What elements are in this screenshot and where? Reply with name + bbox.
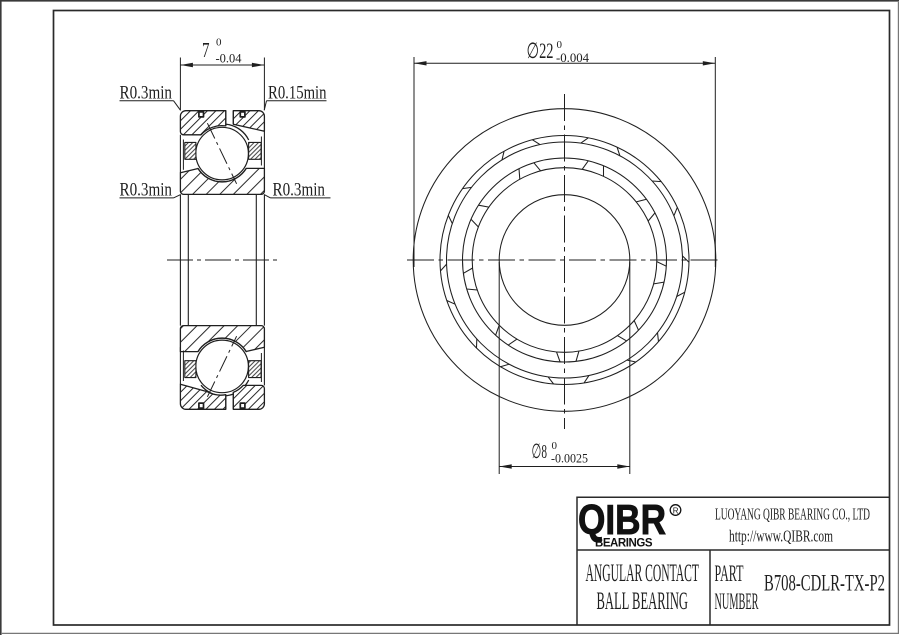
svg-text:0: 0 — [216, 37, 222, 49]
svg-text:ANGULAR CONTACT: ANGULAR CONTACT — [586, 560, 700, 587]
svg-text:0: 0 — [552, 440, 558, 452]
svg-text:∅8: ∅8 — [532, 441, 548, 463]
svg-text:http://www.QIBR.com: http://www.QIBR.com — [729, 527, 833, 546]
svg-text:-0.0025: -0.0025 — [551, 452, 588, 466]
svg-text:BEARINGS: BEARINGS — [595, 538, 653, 550]
svg-text:∅22: ∅22 — [527, 38, 554, 63]
svg-text:PART: PART — [715, 561, 744, 586]
svg-text:R: R — [673, 507, 679, 516]
svg-text:QIBR: QIBR — [578, 496, 666, 543]
svg-text:7: 7 — [202, 38, 210, 62]
svg-text:NUMBER: NUMBER — [715, 589, 759, 614]
svg-text:LUOYANG QIBR BEARING CO., LTD: LUOYANG QIBR BEARING CO., LTD — [715, 505, 870, 524]
svg-text:-0.004: -0.004 — [556, 50, 589, 65]
svg-text:BALL BEARING: BALL BEARING — [597, 588, 689, 615]
svg-text:B708-CDLR-TX-P2: B708-CDLR-TX-P2 — [764, 571, 885, 596]
svg-text:-0.04: -0.04 — [216, 50, 242, 65]
